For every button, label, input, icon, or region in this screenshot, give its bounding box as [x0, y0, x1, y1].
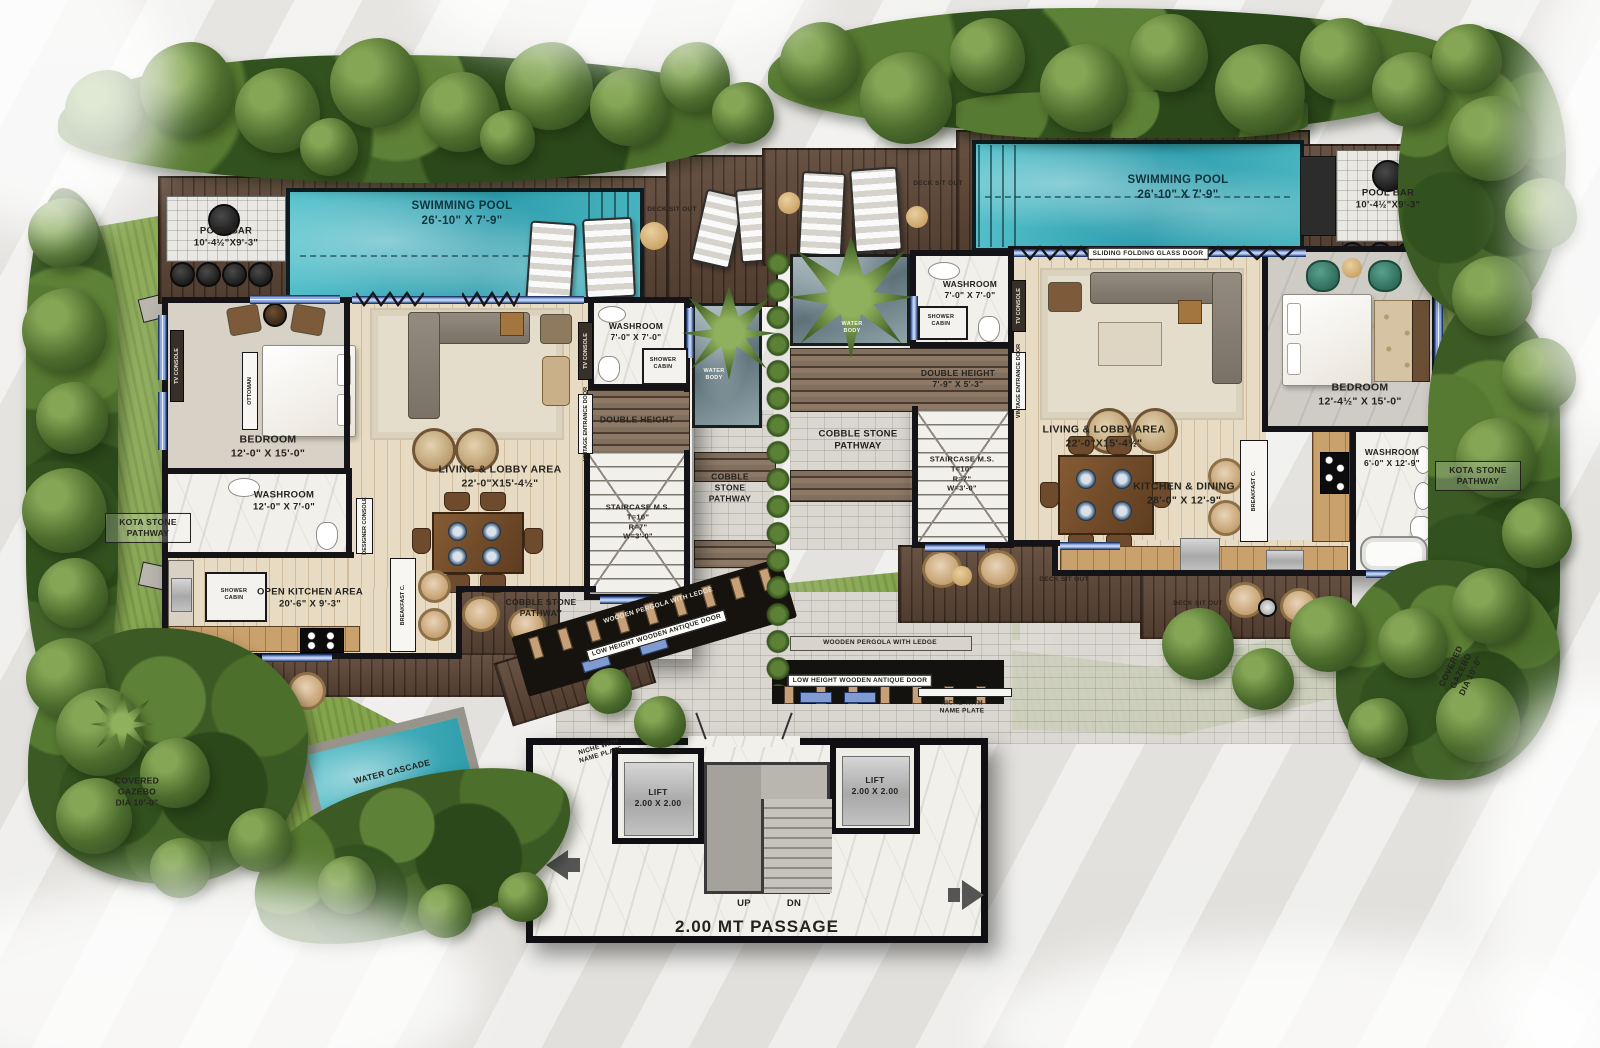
- living-label-right: LIVING & LOBBY AREA22'-0"X15'-4½": [1043, 423, 1166, 450]
- deck-sit-out-label: DECK SIT OUT: [913, 180, 962, 188]
- up-label: UP: [737, 898, 751, 910]
- sofa: [1212, 272, 1242, 384]
- water-body-label: WATER BODY: [699, 368, 729, 382]
- deck-chair: [525, 220, 576, 303]
- armchair: [290, 303, 326, 336]
- kitchen-sink: [1266, 550, 1304, 570]
- dining-chair: [524, 528, 543, 554]
- deck-sit-out-label: DECK SIT OUT: [1039, 576, 1088, 584]
- deck-table: [778, 192, 800, 214]
- gazebo-label-left: COVERED GAZEBODIA 10'-0": [104, 775, 170, 808]
- dining-chair: [444, 492, 470, 511]
- armchair: [1048, 282, 1082, 312]
- vintage-entrance-door: VINTAGE ENTRANCE DOOR: [578, 394, 593, 454]
- armchair: [540, 314, 572, 344]
- dn-label: DN: [787, 898, 801, 910]
- shower-cabin-label: SHOWER CABIN: [217, 588, 251, 602]
- toilet: [316, 522, 338, 550]
- tv-console: TV CONSOLE: [1011, 280, 1026, 332]
- window: [262, 654, 332, 662]
- bed: [1282, 294, 1372, 386]
- bar-stool: [170, 262, 195, 287]
- vintage-entrance-door: VINTAGE ENTRANCE DOOR: [1011, 352, 1026, 410]
- appliance: [1180, 538, 1220, 572]
- staircase-label-left: STAIRCASE M.S.T=10"R=7"W=3'-0": [606, 503, 670, 542]
- twin-villa-floor-plan: OTTOMAN TV CONSOLE BREAKFAST C. DESIGNER…: [0, 0, 1600, 1048]
- washroom2-label-left: WASHROOM7'-0" X 7'-0": [609, 321, 663, 343]
- water-body-label: WATER BODY: [837, 321, 867, 335]
- window: [158, 392, 167, 450]
- washroom-label-right: WASHROOM6'-0" X 12'-9": [1364, 447, 1420, 469]
- bar-stool-rattan: [418, 608, 451, 641]
- bed: [262, 345, 356, 437]
- patio-table: [952, 566, 972, 586]
- wardrobe: [1412, 300, 1430, 382]
- kota-label-left: KOTA STONE PATHWAY: [105, 513, 191, 543]
- dining-table: [432, 512, 524, 574]
- window: [1060, 542, 1120, 550]
- bar-stool: [222, 262, 247, 287]
- bedroom-label-left: BEDROOM12'-0" X 15'-0": [231, 433, 305, 460]
- shower-cabin-label: SHOWER CABIN: [646, 357, 680, 371]
- kota-label-right: KOTA STONE PATHWAY: [1435, 461, 1521, 491]
- kitchen-sink: [171, 578, 192, 612]
- tv-console: TV CONSOLE: [578, 322, 593, 380]
- armchair: [226, 303, 262, 336]
- pool-cabana: [1300, 156, 1336, 236]
- direction-arrow-right: [962, 880, 984, 910]
- dining-chair: [480, 492, 506, 511]
- deck-chair: [582, 217, 636, 300]
- double-height-label-right: DOUBLE HEIGHT7'-9" X 5'-3": [921, 368, 995, 390]
- accent-chair: [1368, 260, 1402, 292]
- sofa: [408, 312, 440, 419]
- stove: [300, 628, 344, 653]
- direction-arrow-bar: [948, 888, 960, 902]
- stairwell: [704, 762, 830, 894]
- pool-steps: [978, 145, 1018, 247]
- pool-lane-line: [300, 255, 630, 257]
- lift-label: LIFT2.00 X 2.00: [852, 775, 899, 797]
- tv-console: TV CONSOLE: [170, 330, 184, 402]
- pool-label-left: SWIMMING POOL26'-10" X 7'-9": [411, 199, 512, 229]
- sliding-door-label: SLIDING FOLDING GLASS DOOR: [1088, 248, 1209, 260]
- deck-table: [906, 206, 928, 228]
- side-table: [500, 312, 524, 336]
- bedroom-label-right: BEDROOM12'-4½" X 15'-0": [1318, 381, 1401, 408]
- deck-sit-out-label: DECK SIT OUT: [647, 206, 696, 214]
- cobble-label: COBBLE STONE PATHWAY: [502, 597, 580, 619]
- designer-console: DESIGNER CONSOLE: [356, 498, 373, 554]
- accent-chair: [1306, 260, 1340, 292]
- folding-door-zigzag: [462, 291, 520, 307]
- living-label-left: LIVING & LOBBY AREA22'-0"X15'-4½": [439, 463, 562, 490]
- window: [250, 295, 340, 304]
- staircase-label-right: STAIRCASE M.S.T=10"R=7"W=3'-0": [930, 455, 994, 494]
- window: [158, 315, 167, 380]
- toilet: [598, 356, 620, 382]
- dining-chair: [1040, 482, 1059, 508]
- antique-door-label: LOW HEIGHT WOODEN ANTIQUE DOOR: [788, 675, 932, 687]
- folding-door-zigzag: [356, 291, 424, 307]
- patio-chair: [462, 596, 500, 632]
- direction-arrow-bar: [568, 858, 580, 872]
- patio-table: [1258, 598, 1277, 617]
- lift-label: LIFT2.00 X 2.00: [635, 787, 682, 809]
- pool-bar-label-left: POOL BAR10'-4½"X9'-3": [194, 226, 258, 251]
- toilet: [978, 316, 1000, 342]
- side-table: [1178, 300, 1202, 324]
- sink: [928, 262, 960, 280]
- round-table: [1342, 258, 1362, 278]
- washroom-label-left: WASHROOM12'-0" X 7'-0": [253, 490, 315, 515]
- cobble-label: COBBLE STONE PATHWAY: [812, 429, 904, 454]
- bar-stool: [196, 262, 221, 287]
- shower-cabin-label: SHOWER CABIN: [924, 314, 958, 328]
- bar-stool: [248, 262, 273, 287]
- patio-chair: [978, 550, 1018, 588]
- window: [910, 296, 918, 340]
- cobble-label: COBBLE STONE PATHWAY: [699, 471, 761, 504]
- pool-bar-label-right: POOL BAR10'-4½"X9'-3": [1356, 188, 1420, 213]
- deck-sit-out-label: DECK SIT OUT: [1173, 600, 1222, 608]
- breakfast-counter-left: BREAKFAST C.: [390, 558, 416, 652]
- planter-strip: [765, 250, 791, 686]
- stove: [1320, 452, 1349, 494]
- niche-label: NICHE WITHNAME PLATE: [940, 700, 985, 717]
- dining-chair: [412, 528, 431, 554]
- passage-label: 2.00 MT PASSAGE: [675, 916, 839, 938]
- breakfast-counter-right: BREAKFAST C.: [1240, 440, 1268, 542]
- bar-stool-rattan: [418, 570, 451, 603]
- pool-label-right: SWIMMING POOL26'-10" X 7'-9": [1127, 173, 1228, 203]
- coffee-table: [1098, 322, 1162, 366]
- washroom-top-label-right: WASHROOM7'-0" X 7'-0": [943, 279, 997, 301]
- round-table: [263, 303, 287, 327]
- kitchen-label-right: KITCHEN & DINING28'-0" X 12'-9": [1133, 480, 1235, 507]
- niche-shelf: [918, 688, 1012, 697]
- deck-chair: [798, 171, 846, 257]
- deck-chair: [849, 166, 903, 253]
- window: [925, 544, 985, 552]
- deck-table: [640, 222, 668, 250]
- patio-chair: [1226, 582, 1264, 618]
- kitchen-label-left: OPEN KITCHEN AREA20'-6" X 9'-3": [257, 587, 363, 612]
- chaise: [542, 356, 570, 406]
- path-steps: [790, 470, 916, 502]
- pergola-label: WOODEN PERGOLA WITH LEDGE: [823, 639, 937, 647]
- double-height-label-left: DOUBLE HEIGHT: [600, 414, 674, 425]
- ottoman-bench: OTTOMAN: [242, 352, 258, 430]
